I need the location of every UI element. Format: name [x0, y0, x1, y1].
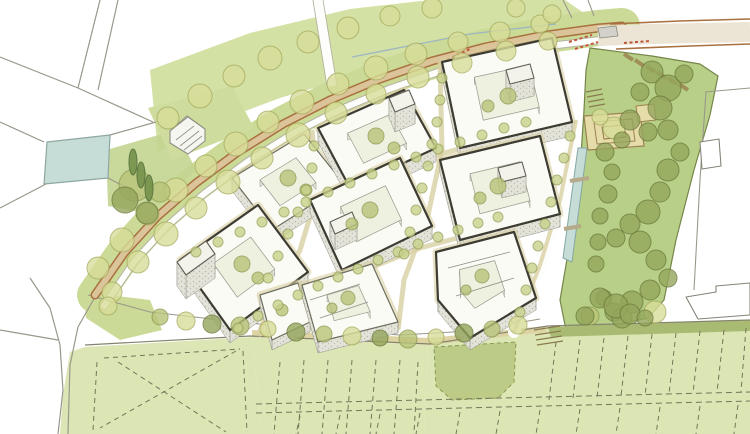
sketch-road-3 [98, 0, 118, 90]
west-lane-edge-1 [30, 278, 63, 434]
sketch-road-1 [0, 57, 78, 88]
sketch-road-4 [78, 88, 153, 122]
sketch-road-5 [0, 122, 44, 142]
paddock-dark [434, 342, 516, 400]
field-west [60, 337, 262, 434]
west-stub [0, 330, 58, 340]
sketch-road-2 [78, 0, 100, 88]
pond [44, 135, 110, 184]
traffic-island [598, 26, 618, 38]
sketch-road-6 [0, 184, 46, 208]
existing-building-east [700, 139, 721, 169]
north-road-surface [598, 32, 750, 36]
masterplan-illustration [0, 0, 750, 434]
field-center [252, 337, 428, 434]
sketch-road-7 [110, 122, 156, 135]
existing-building-southeast [686, 283, 750, 319]
masterplan-canvas [0, 0, 750, 434]
north-road-edge-bottom [616, 44, 750, 49]
